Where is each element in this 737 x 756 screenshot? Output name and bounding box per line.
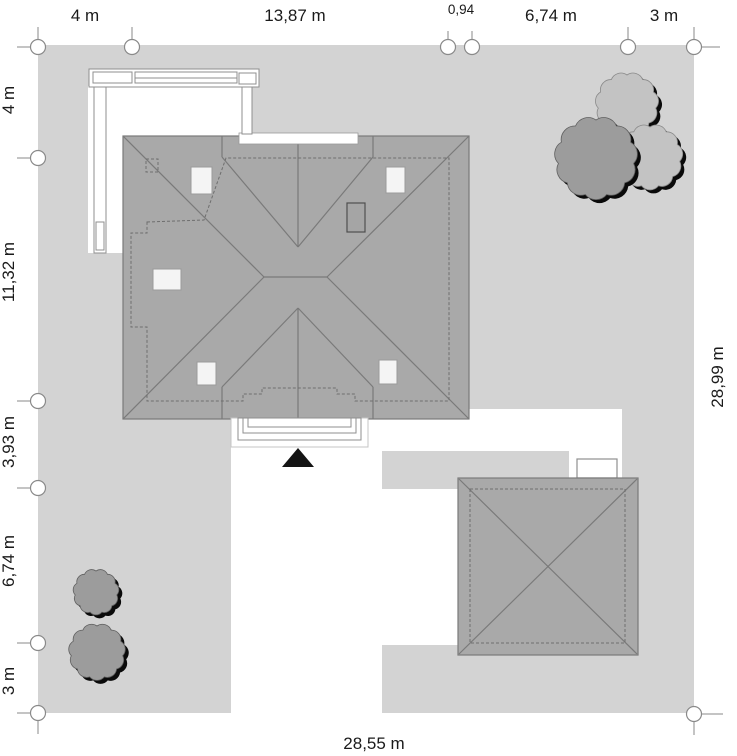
skylight	[191, 167, 212, 194]
skylight	[386, 167, 405, 193]
dim-top-4: 6,74 m	[525, 6, 577, 25]
chimney	[347, 203, 365, 232]
dimension-marker	[125, 40, 140, 55]
dimension-marker	[31, 151, 46, 166]
dimension-marker	[441, 40, 456, 55]
dim-left-3: 3,93 m	[0, 416, 18, 468]
entrance-path	[231, 451, 382, 713]
dim-left-4: 6,74 m	[0, 535, 18, 587]
dimension-marker	[31, 40, 46, 55]
dimension-marker	[31, 394, 46, 409]
dim-bottom: 28,55 m	[343, 734, 404, 753]
dimension-marker	[465, 40, 480, 55]
dim-left-5: 3 m	[0, 667, 18, 695]
dimension-marker	[687, 707, 702, 722]
dim-top-3: 0,94	[448, 2, 475, 17]
garage-entry-canopy	[577, 459, 617, 478]
dimension-marker	[31, 636, 46, 651]
garage-roof	[458, 478, 638, 655]
site-plan: 4 m 13,87 m 0,94 6,74 m 3 m 4 m 11,32 m …	[0, 0, 737, 756]
skylight	[153, 269, 181, 290]
skylight	[197, 362, 216, 385]
dimension-marker	[31, 706, 46, 721]
entrance-steps	[231, 418, 368, 447]
dim-right: 28,99 m	[708, 346, 727, 407]
dim-top-1: 4 m	[71, 6, 99, 25]
terrace-strip	[239, 133, 358, 144]
pergola-post	[242, 87, 252, 134]
dim-top-2: 13,87 m	[264, 6, 325, 25]
dim-left-2: 11,32 m	[0, 242, 18, 302]
dimension-marker	[621, 40, 636, 55]
dimension-marker	[687, 40, 702, 55]
dim-left-1: 4 m	[0, 86, 18, 114]
dimension-marker	[31, 481, 46, 496]
dim-top-5: 3 m	[650, 6, 678, 25]
skylight	[379, 360, 397, 384]
site-plan-drawing: 4 m 13,87 m 0,94 6,74 m 3 m 4 m 11,32 m …	[0, 0, 737, 756]
